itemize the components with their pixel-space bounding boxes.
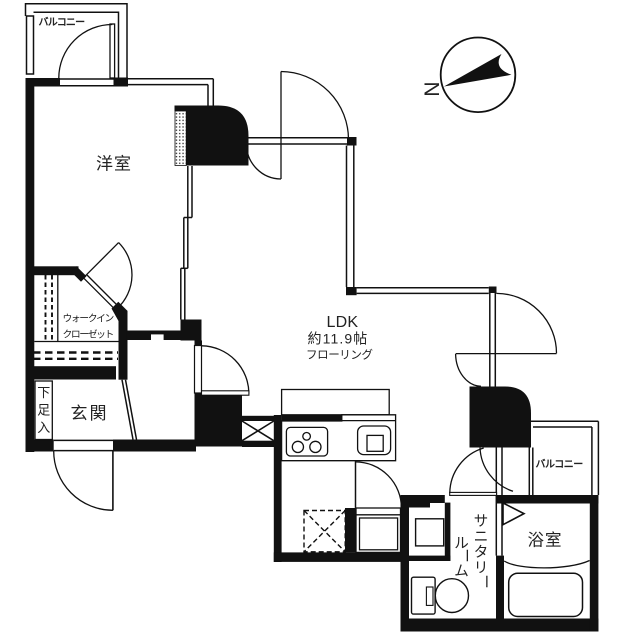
svg-text:サ: サ <box>474 514 489 530</box>
svg-text:ウォークイン: ウォークイン <box>63 313 115 325</box>
svg-text:下: 下 <box>37 385 50 400</box>
svg-text:ー: ー <box>477 574 493 589</box>
svg-text:N: N <box>420 82 443 97</box>
svg-text:ム: ム <box>454 564 469 580</box>
svg-text:ー: ー <box>458 548 474 563</box>
svg-text:バルコニー: バルコニー <box>536 459 584 471</box>
svg-text:バルコニー: バルコニー <box>39 17 86 29</box>
svg-text:足: 足 <box>37 403 50 418</box>
svg-text:入: 入 <box>37 420 50 435</box>
svg-text:クローゼット: クローゼット <box>63 329 114 341</box>
svg-text:浴室: 浴室 <box>528 531 563 550</box>
svg-text:LDK: LDK <box>327 314 359 331</box>
svg-text:ニ: ニ <box>474 530 489 546</box>
svg-text:フローリング: フローリング <box>306 348 373 362</box>
svg-text:洋室: 洋室 <box>96 155 132 174</box>
svg-text:タ: タ <box>474 544 489 561</box>
svg-text:玄関: 玄関 <box>71 404 109 423</box>
svg-text:約11.9帖: 約11.9帖 <box>308 331 369 347</box>
